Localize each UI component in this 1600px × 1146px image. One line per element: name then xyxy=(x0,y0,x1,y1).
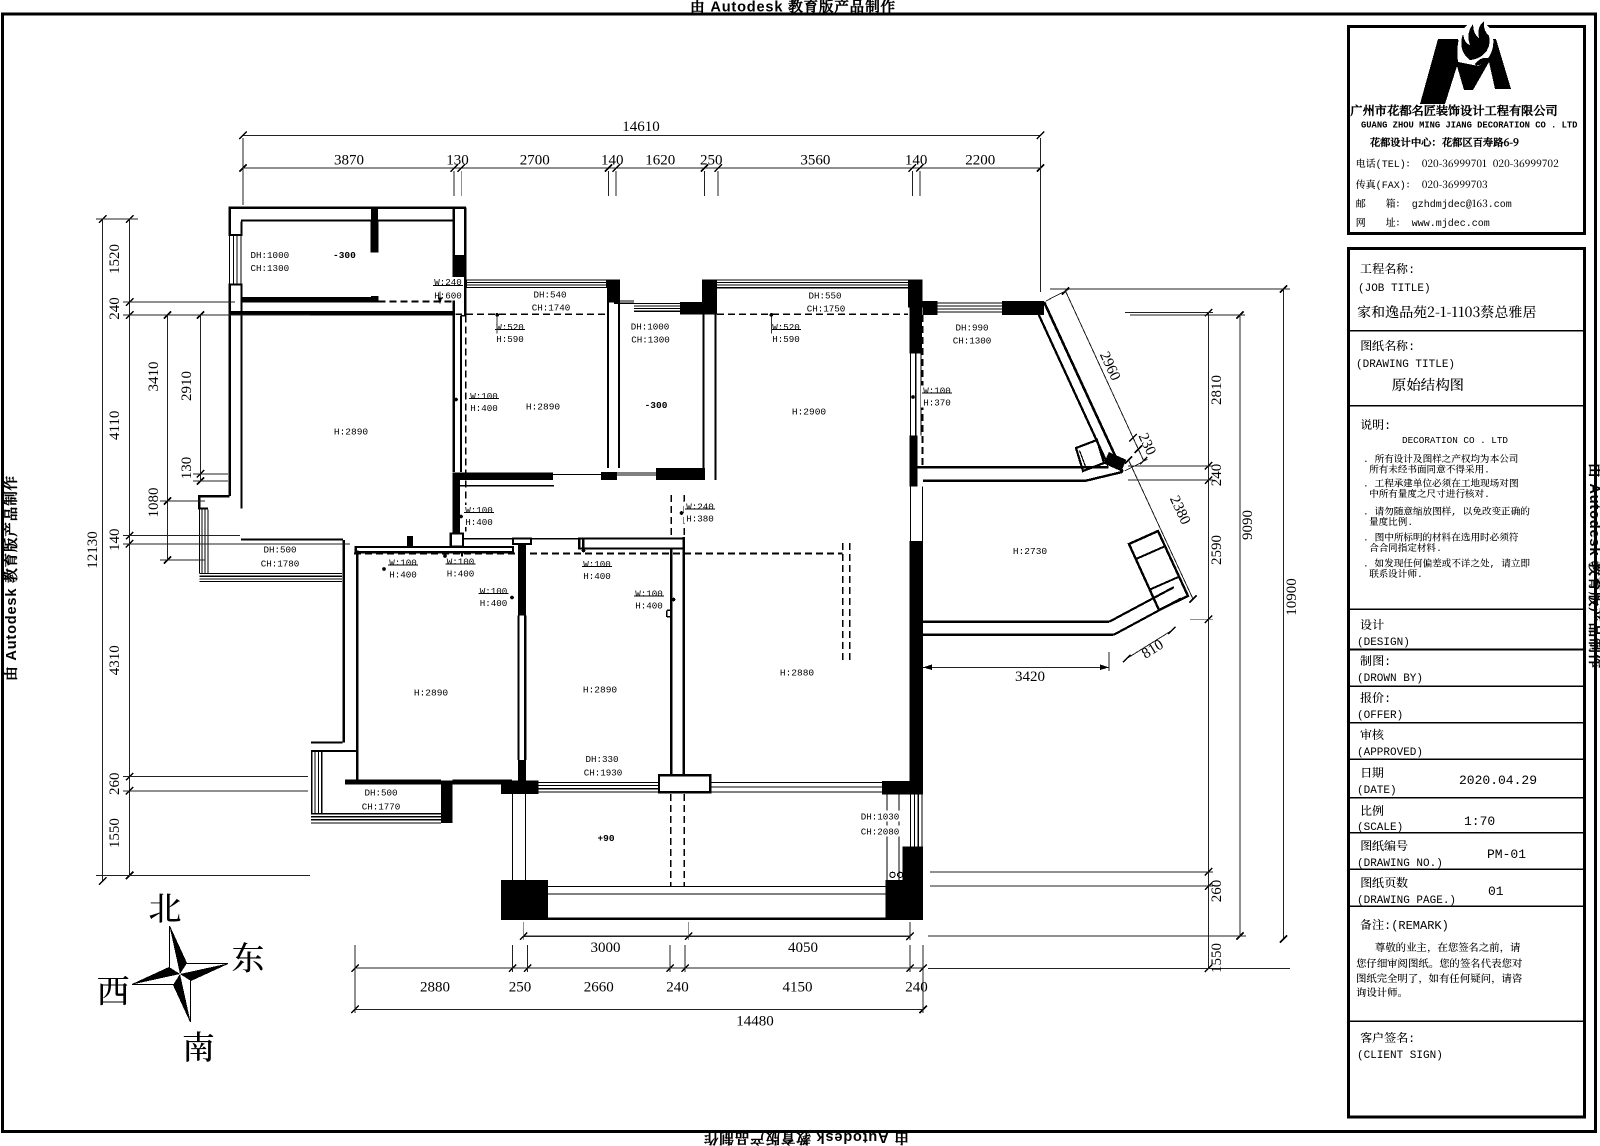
svg-text:由 Autodesk 教育版产品制作: 由 Autodesk 教育版产品制作 xyxy=(703,1128,909,1146)
svg-text:W:100: W:100 xyxy=(583,559,611,570)
svg-text:H:400: H:400 xyxy=(635,601,663,612)
svg-text:DH:330: DH:330 xyxy=(585,754,618,765)
svg-text:4150: 4150 xyxy=(783,980,813,996)
svg-text:H:370: H:370 xyxy=(923,398,951,409)
svg-text:(APPROVED): (APPROVED) xyxy=(1357,747,1423,759)
svg-text:备注:(REMARK): 备注:(REMARK) xyxy=(1360,916,1449,933)
svg-text:140: 140 xyxy=(905,153,928,169)
svg-text:H:2890: H:2890 xyxy=(414,688,449,699)
svg-text:130: 130 xyxy=(446,153,469,169)
svg-text:CH:1300: CH:1300 xyxy=(251,263,290,274)
svg-text:H:600: H:600 xyxy=(434,291,462,302)
svg-text:传真(FAX)： 020-36999703: 传真(FAX)： 020-36999703 xyxy=(1355,176,1488,191)
svg-text:工程名称:: 工程名称: xyxy=(1360,260,1415,277)
svg-text:DH:1000: DH:1000 xyxy=(251,250,290,261)
svg-text:W:100: W:100 xyxy=(635,589,663,600)
svg-text:W:100: W:100 xyxy=(389,558,417,569)
svg-text:图纸编号: 图纸编号 xyxy=(1360,837,1408,854)
svg-text:H:400: H:400 xyxy=(389,570,417,581)
svg-text:CH:1300: CH:1300 xyxy=(631,335,670,346)
svg-text:3870: 3870 xyxy=(334,153,364,169)
svg-text:由 Autodesk 教育版产品制作: 由 Autodesk 教育版产品制作 xyxy=(690,0,896,17)
svg-text:2910: 2910 xyxy=(179,371,195,401)
svg-text:01: 01 xyxy=(1488,884,1504,899)
svg-text:联系设计师.: 联系设计师. xyxy=(1369,566,1423,580)
svg-text:2020.04.29: 2020.04.29 xyxy=(1459,773,1537,788)
svg-text:合合同指定材料.: 合合同指定材料. xyxy=(1369,540,1442,554)
svg-text:南: 南 xyxy=(182,1022,215,1069)
svg-text:北: 北 xyxy=(149,883,182,930)
svg-text:1620: 1620 xyxy=(645,153,675,169)
svg-text:H:400: H:400 xyxy=(470,403,498,414)
svg-text:CH:1930: CH:1930 xyxy=(584,768,623,779)
svg-text:140: 140 xyxy=(601,153,624,169)
svg-text:1520: 1520 xyxy=(107,244,123,274)
svg-text:2590: 2590 xyxy=(1209,535,1225,565)
svg-text:由 Autodesk 教育版产品制作: 由 Autodesk 教育版产品制作 xyxy=(0,475,21,681)
svg-text:H:380: H:380 xyxy=(686,514,714,525)
svg-text:-300: -300 xyxy=(645,400,668,411)
svg-text:邮 箱： gzhdmjdec@163.com: 邮 箱： gzhdmjdec@163.com xyxy=(1356,195,1512,210)
svg-text:2200: 2200 xyxy=(965,153,995,169)
svg-text:H:2890: H:2890 xyxy=(526,402,561,413)
svg-text:东: 东 xyxy=(232,933,265,980)
svg-text:260: 260 xyxy=(1209,880,1225,903)
svg-text:W:100: W:100 xyxy=(447,557,475,568)
svg-text:DECORATION CO . LTD: DECORATION CO . LTD xyxy=(1402,435,1508,446)
svg-text:日期: 日期 xyxy=(1360,764,1384,781)
svg-text:W:100: W:100 xyxy=(465,505,493,516)
svg-text:240: 240 xyxy=(905,980,928,996)
svg-text:4110: 4110 xyxy=(107,411,123,440)
svg-text:1:70: 1:70 xyxy=(1464,814,1495,829)
svg-text:(DRAWING TITLE): (DRAWING TITLE) xyxy=(1356,359,1455,371)
svg-text:240: 240 xyxy=(107,297,123,320)
svg-text:所有未经书面同意不得采用.: 所有未经书面同意不得采用. xyxy=(1369,462,1490,476)
svg-text:140: 140 xyxy=(107,528,123,551)
svg-text:DH:500: DH:500 xyxy=(263,545,296,556)
svg-text:H:2900: H:2900 xyxy=(792,407,827,418)
svg-text:250: 250 xyxy=(700,153,723,169)
svg-text:W:100: W:100 xyxy=(923,386,951,397)
svg-text:4050: 4050 xyxy=(788,940,818,956)
svg-text:量度比例.: 量度比例. xyxy=(1369,514,1413,528)
svg-text:3000: 3000 xyxy=(591,940,621,956)
svg-text:您仔细审阅图纸。您的签名代表您对: 您仔细审阅图纸。您的签名代表您对 xyxy=(1356,955,1523,970)
svg-text:3410: 3410 xyxy=(146,362,162,392)
svg-text:W:100: W:100 xyxy=(480,586,508,597)
svg-text:250: 250 xyxy=(509,980,532,996)
svg-text:DH:1000: DH:1000 xyxy=(631,322,670,333)
svg-text:1080: 1080 xyxy=(146,488,162,518)
svg-text:H:590: H:590 xyxy=(772,334,800,345)
svg-text:W:240: W:240 xyxy=(686,502,714,513)
svg-text:(DESIGN): (DESIGN) xyxy=(1357,637,1410,649)
svg-text:(DRAWING PAGE.): (DRAWING PAGE.) xyxy=(1357,895,1456,907)
svg-text:(DROWN BY): (DROWN BY) xyxy=(1357,673,1423,685)
svg-text:W:240: W:240 xyxy=(434,277,462,288)
svg-text:原始结构图: 原始结构图 xyxy=(1392,374,1465,395)
svg-text:花都设计中心：花都区百寿路6-9: 花都设计中心：花都区百寿路6-9 xyxy=(1369,134,1519,149)
svg-text:H:2890: H:2890 xyxy=(583,685,618,696)
svg-text:客户签名:: 客户签名: xyxy=(1360,1029,1415,1046)
svg-text:西: 西 xyxy=(97,966,130,1013)
svg-text:2660: 2660 xyxy=(584,980,614,996)
svg-text:CH:1750: CH:1750 xyxy=(807,304,846,315)
svg-text:家和逸品苑2-1-1103蔡总雅居: 家和逸品苑2-1-1103蔡总雅居 xyxy=(1357,302,1536,322)
svg-text:制图:: 制图: xyxy=(1360,652,1391,669)
svg-text:2880: 2880 xyxy=(420,980,450,996)
svg-text:DH:990: DH:990 xyxy=(955,323,988,334)
svg-text:240: 240 xyxy=(666,980,689,996)
svg-text:设计: 设计 xyxy=(1360,616,1384,633)
svg-text:H:2890: H:2890 xyxy=(334,427,369,438)
svg-text:(CLIENT SIGN): (CLIENT SIGN) xyxy=(1357,1050,1443,1062)
svg-text:(DATE): (DATE) xyxy=(1357,785,1397,797)
svg-text:H:400: H:400 xyxy=(465,517,493,528)
svg-text:CH:1780: CH:1780 xyxy=(261,559,300,570)
svg-text:1550: 1550 xyxy=(107,818,123,848)
svg-text:3420: 3420 xyxy=(1015,669,1045,685)
svg-text:14610: 14610 xyxy=(622,119,660,135)
svg-text:W:520: W:520 xyxy=(772,322,800,333)
svg-text:9090: 9090 xyxy=(1240,510,1256,540)
svg-text:CH:1300: CH:1300 xyxy=(953,336,992,347)
svg-text:4310: 4310 xyxy=(107,645,123,675)
svg-text:(OFFER): (OFFER) xyxy=(1357,710,1403,722)
svg-text:图纸名称:: 图纸名称: xyxy=(1360,337,1415,354)
svg-text:H:590: H:590 xyxy=(496,334,524,345)
svg-text:(JOB TITLE): (JOB TITLE) xyxy=(1358,283,1431,295)
svg-text:+90: +90 xyxy=(597,833,614,844)
svg-text:H:2880: H:2880 xyxy=(780,668,815,679)
svg-text:GUANG ZHOU MING JIANG DECORATI: GUANG ZHOU MING JIANG DECORATION CO . LT… xyxy=(1361,121,1577,131)
svg-text:-300: -300 xyxy=(333,250,356,261)
svg-text:由 Autodesk 教育版产品制作: 由 Autodesk 教育版产品制作 xyxy=(1585,463,1600,669)
svg-text:询设计师。: 询设计师。 xyxy=(1356,984,1408,999)
svg-text:14480: 14480 xyxy=(736,1014,774,1030)
svg-text:广州市花都名匠装饰设计工程有限公司: 广州市花都名匠装饰设计工程有限公司 xyxy=(1349,102,1557,119)
svg-text:中所有量度之尺寸进行核对.: 中所有量度之尺寸进行核对. xyxy=(1369,486,1490,500)
svg-text:报价:: 报价: xyxy=(1360,689,1391,706)
svg-text:DH:1030: DH:1030 xyxy=(861,812,900,823)
svg-text:网 址： www.mjdec.com: 网 址： www.mjdec.com xyxy=(1356,214,1490,229)
svg-text:说明:: 说明: xyxy=(1360,416,1391,433)
svg-text:比例: 比例 xyxy=(1360,802,1384,819)
svg-text:12130: 12130 xyxy=(85,531,101,569)
svg-text:审核: 审核 xyxy=(1360,726,1384,743)
svg-text:2810: 2810 xyxy=(1209,375,1225,405)
svg-text:PM-01: PM-01 xyxy=(1487,847,1526,862)
svg-text:H:2730: H:2730 xyxy=(1013,546,1048,557)
svg-text:CH:1770: CH:1770 xyxy=(362,802,401,813)
svg-text:10900: 10900 xyxy=(1284,578,1300,616)
svg-text:电话(TEL)： 020-36999701 020-3: 电话(TEL)： 020-36999701 020-36999702 xyxy=(1356,155,1559,170)
svg-text:尊敬的业主，在您签名之前，请: 尊敬的业主，在您签名之前，请 xyxy=(1375,939,1521,954)
svg-text:H:400: H:400 xyxy=(583,571,611,582)
svg-text:CH:2080: CH:2080 xyxy=(861,827,900,838)
svg-text:2700: 2700 xyxy=(520,153,550,169)
svg-text:240: 240 xyxy=(1209,464,1225,487)
svg-text:130: 130 xyxy=(179,457,195,480)
svg-text:H:400: H:400 xyxy=(480,598,508,609)
svg-text:W:520: W:520 xyxy=(496,322,524,333)
svg-text:DH:540: DH:540 xyxy=(533,290,566,301)
svg-text:(SCALE): (SCALE) xyxy=(1357,822,1403,834)
svg-text:图纸完全明了，如有任何疑问，请咨: 图纸完全明了，如有任何疑问，请咨 xyxy=(1356,970,1523,985)
svg-text:3560: 3560 xyxy=(800,153,830,169)
svg-text:CH:1740: CH:1740 xyxy=(532,303,571,314)
svg-text:H:400: H:400 xyxy=(447,569,475,580)
svg-text:DH:500: DH:500 xyxy=(364,788,397,799)
svg-text:图纸页数: 图纸页数 xyxy=(1360,874,1408,891)
svg-text:W:100: W:100 xyxy=(470,391,498,402)
svg-text:DH:550: DH:550 xyxy=(808,291,841,302)
svg-text:(DRAWING NO.): (DRAWING NO.) xyxy=(1357,858,1443,870)
svg-text:1550: 1550 xyxy=(1209,943,1225,973)
svg-text:260: 260 xyxy=(107,772,123,795)
